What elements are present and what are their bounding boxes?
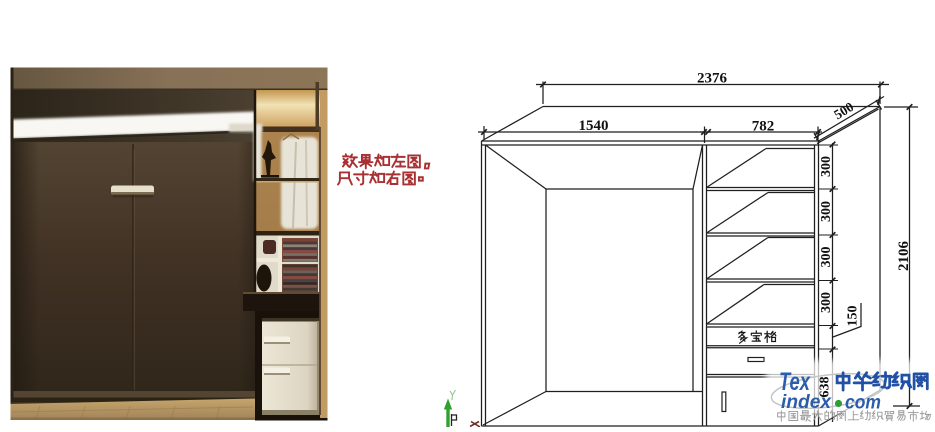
svg-text:300: 300 — [819, 292, 834, 313]
svg-text:index: index — [781, 391, 832, 413]
svg-text:com: com — [845, 392, 881, 414]
svg-text:300: 300 — [819, 156, 834, 177]
svg-text:150: 150 — [846, 306, 861, 327]
svg-text:300: 300 — [819, 201, 834, 222]
svg-text:2376: 2376 — [697, 71, 728, 87]
svg-text:1540: 1540 — [579, 118, 609, 134]
svg-text:300: 300 — [819, 247, 834, 268]
svg-text:2106: 2106 — [896, 241, 912, 272]
svg-text:782: 782 — [752, 119, 775, 135]
